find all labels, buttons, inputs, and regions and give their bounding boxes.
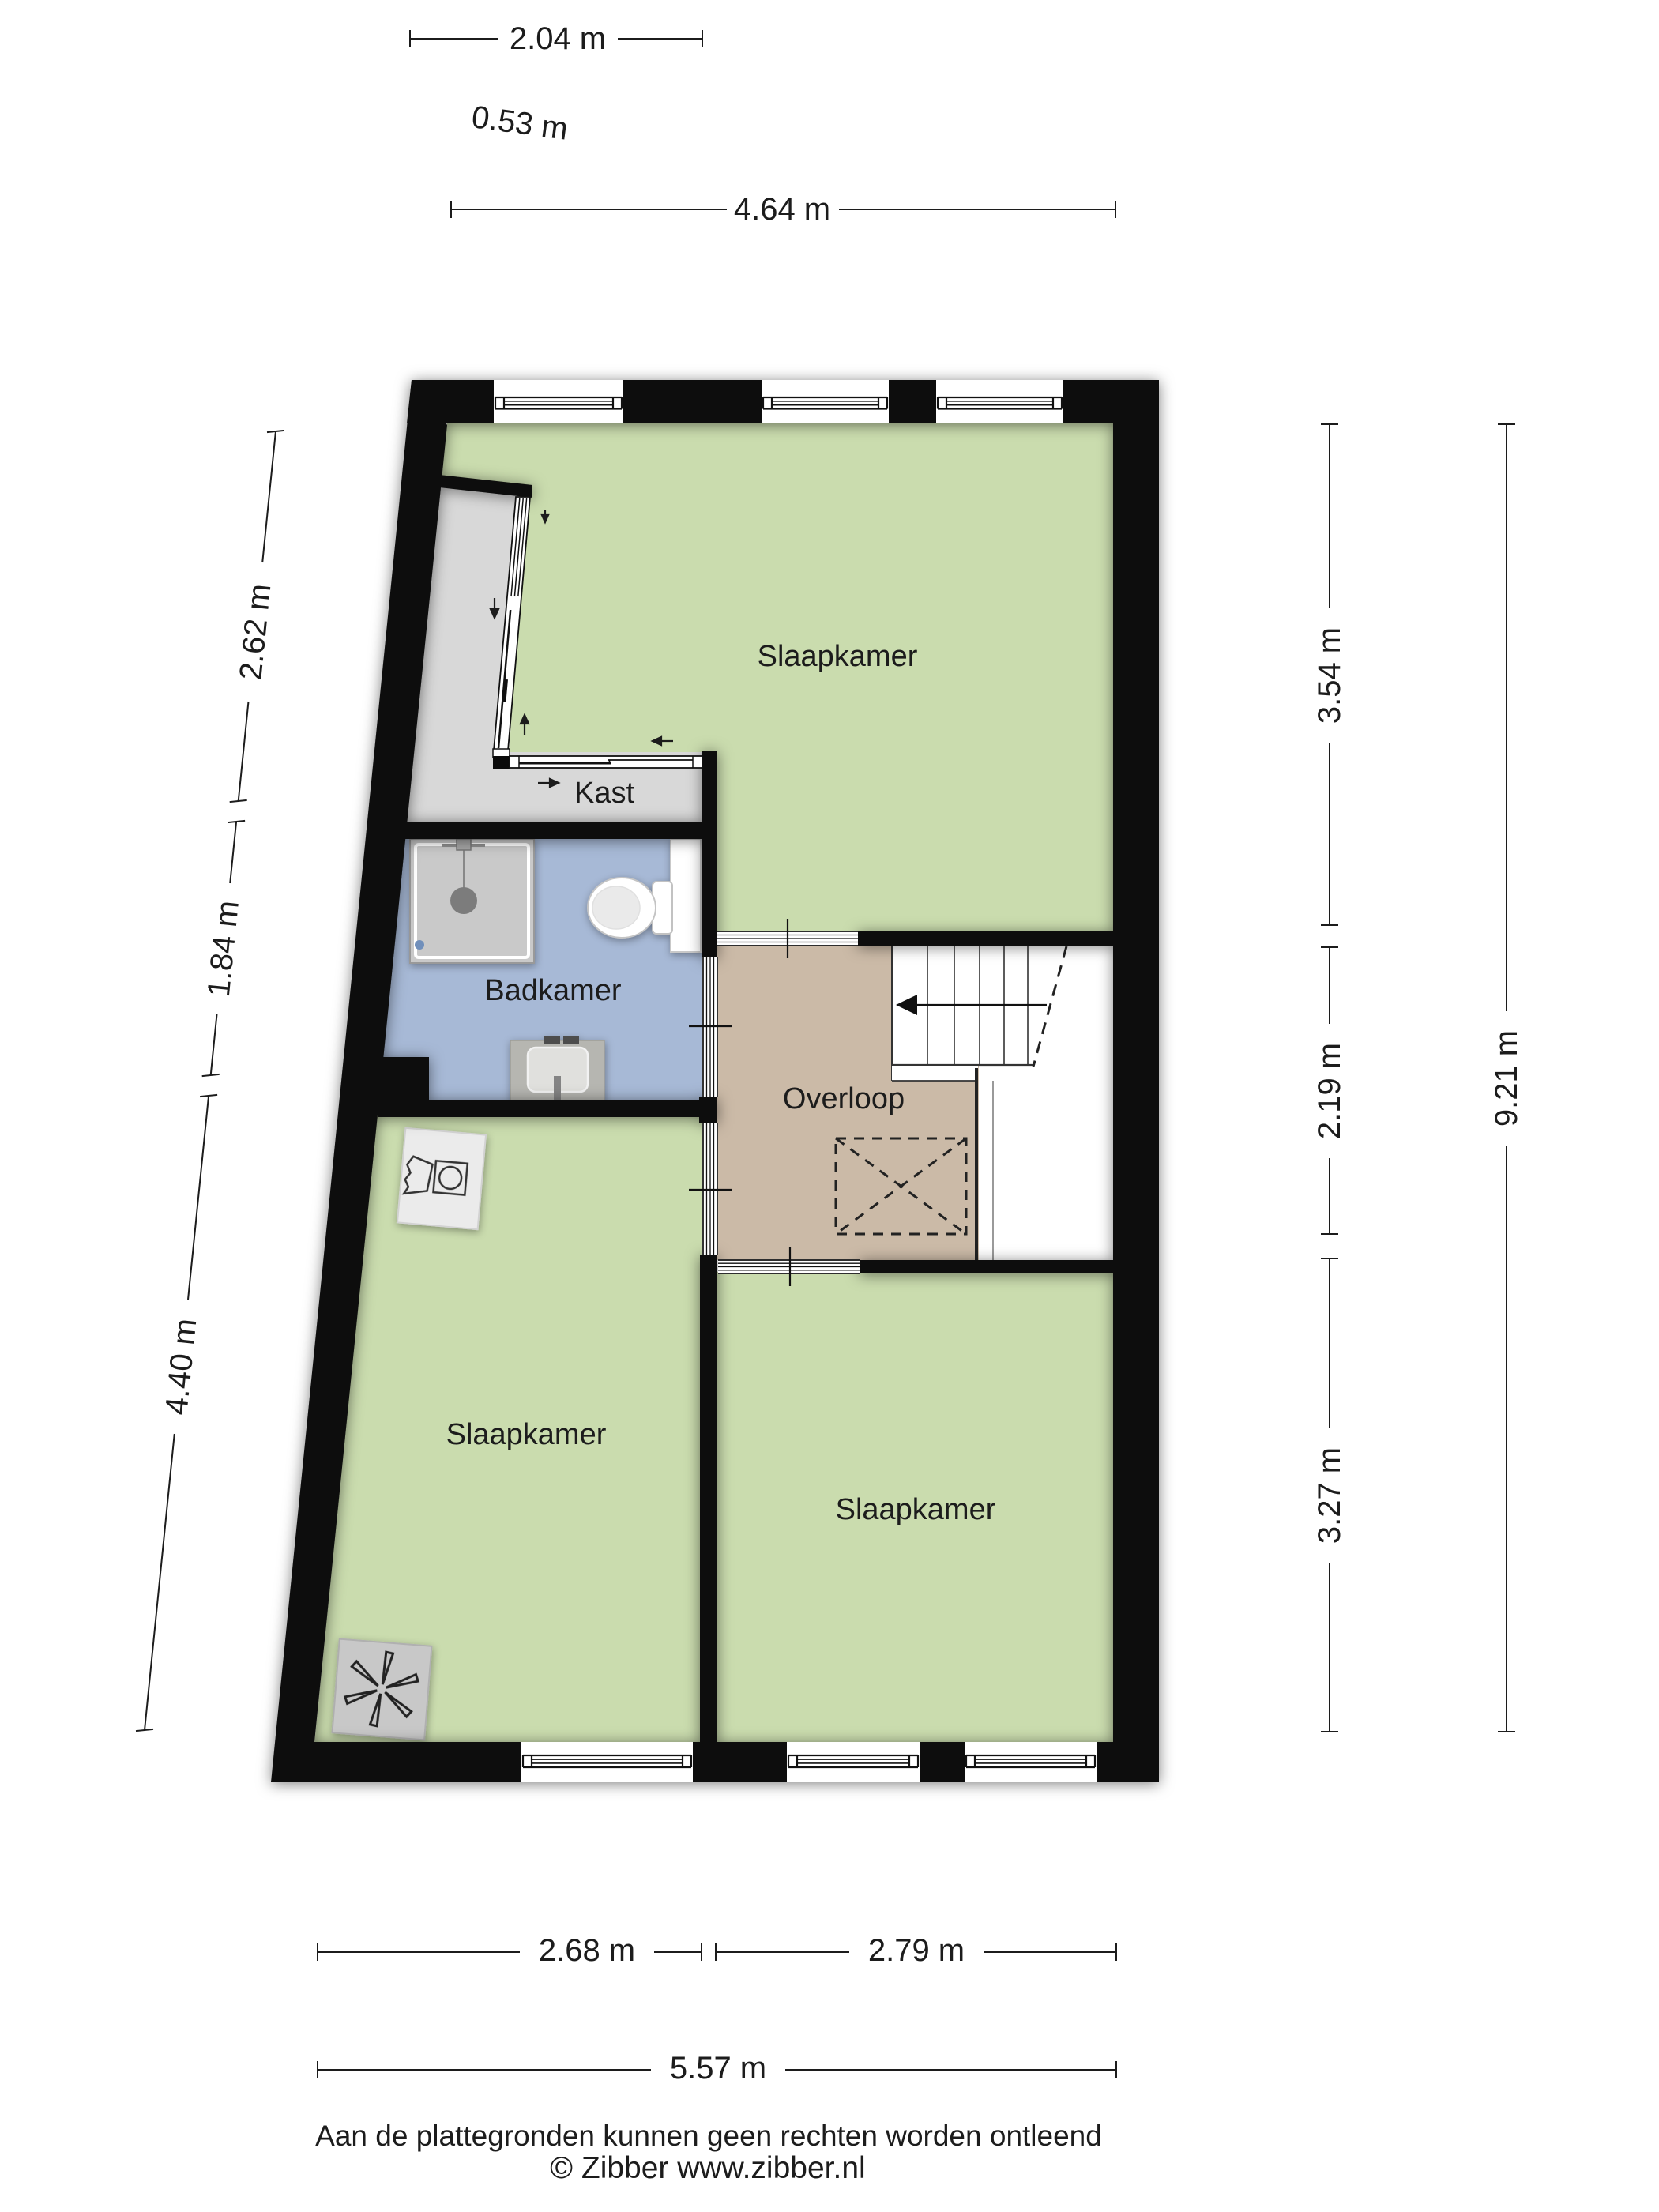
svg-text:4.40 m: 4.40 m	[159, 1317, 203, 1416]
svg-text:Overloop: Overloop	[783, 1082, 905, 1115]
svg-text:Slaapkamer: Slaapkamer	[758, 640, 918, 673]
svg-text:3.54 m: 3.54 m	[1312, 627, 1347, 724]
svg-text:Kast: Kast	[574, 777, 634, 810]
svg-text:2.79 m: 2.79 m	[868, 1933, 965, 1968]
svg-text:2.62 m: 2.62 m	[233, 582, 277, 682]
svg-text:Slaapkamer: Slaapkamer	[836, 1493, 996, 1526]
svg-text:2.68 m: 2.68 m	[539, 1933, 635, 1968]
svg-text:5.57 m: 5.57 m	[670, 2051, 766, 2086]
svg-text:Aan de plattegronden kunnen ge: Aan de plattegronden kunnen geen rechten…	[315, 2120, 1102, 2152]
svg-text:2.19 m: 2.19 m	[1312, 1043, 1347, 1139]
svg-text:9.21 m: 9.21 m	[1489, 1030, 1524, 1127]
svg-text:Slaapkamer: Slaapkamer	[446, 1418, 607, 1451]
svg-text:1.84 m: 1.84 m	[201, 899, 246, 999]
svg-text:0.53 m: 0.53 m	[470, 100, 570, 147]
svg-text:3.27 m: 3.27 m	[1312, 1447, 1347, 1544]
svg-text:Badkamer: Badkamer	[484, 974, 622, 1007]
svg-text:2.04 m: 2.04 m	[510, 21, 606, 56]
svg-text:© Zibber www.zibber.nl: © Zibber www.zibber.nl	[550, 2151, 865, 2185]
svg-text:4.64 m: 4.64 m	[734, 192, 830, 227]
